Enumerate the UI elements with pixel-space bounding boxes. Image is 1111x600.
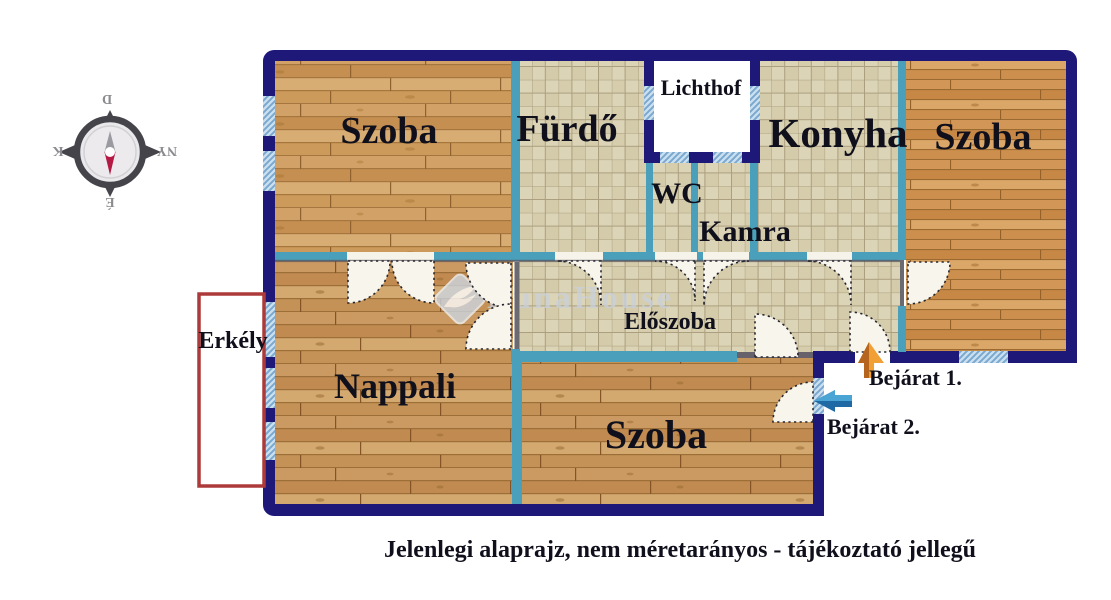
svg-text:NY: NY xyxy=(157,143,177,158)
svg-text:Lichthof: Lichthof xyxy=(661,75,742,100)
svg-text:Bejárat 1.: Bejárat 1. xyxy=(869,365,962,390)
svg-text:D: D xyxy=(102,91,112,106)
svg-text:Szoba: Szoba xyxy=(340,110,437,152)
svg-text:Szoba: Szoba xyxy=(934,116,1031,158)
svg-text:Előszoba: Előszoba xyxy=(624,309,716,335)
svg-text:Szoba: Szoba xyxy=(605,412,707,457)
svg-text:Kamra: Kamra xyxy=(699,215,791,248)
svg-text:É: É xyxy=(105,194,114,211)
svg-text:Fürdő: Fürdő xyxy=(516,108,617,150)
svg-text:Bejárat 2.: Bejárat 2. xyxy=(827,414,920,439)
svg-text:Nappali: Nappali xyxy=(334,366,456,406)
svg-text:WC: WC xyxy=(651,177,703,210)
svg-text:K: K xyxy=(52,143,63,158)
svg-text:Konyha: Konyha xyxy=(769,110,908,156)
svg-text:Erkély: Erkély xyxy=(198,328,267,354)
svg-text:Jelenlegi alaprajz, nem méreta: Jelenlegi alaprajz, nem méretarányos - t… xyxy=(384,537,976,563)
